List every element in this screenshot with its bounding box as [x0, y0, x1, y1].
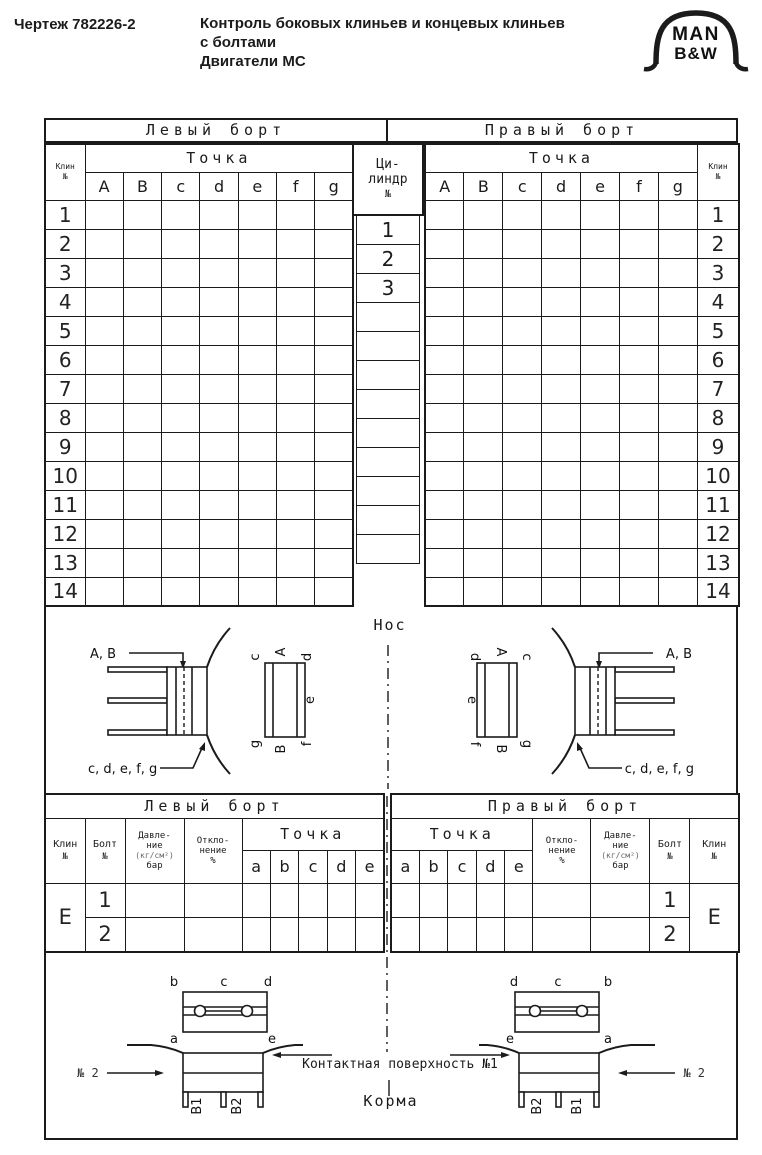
grid-cell	[123, 490, 161, 519]
row-number: 13	[697, 548, 739, 577]
cylinder-cell	[356, 361, 420, 390]
table-row: 12	[45, 519, 353, 548]
plan-label-A: A	[493, 648, 508, 657]
grid-cell	[581, 229, 620, 258]
number-sign: №	[46, 851, 85, 863]
grid-cell	[238, 461, 276, 490]
table-row: 13	[425, 548, 739, 577]
row-number: 1	[45, 200, 85, 229]
grid-cell	[200, 258, 238, 287]
row-number: 12	[697, 519, 739, 548]
grid-cell	[200, 316, 238, 345]
row-number: 9	[45, 432, 85, 461]
middle-right-wedge-diagram: A, B c, d, e, f, g d A c e f B g	[437, 615, 727, 793]
pressure-unit-bar: бар	[126, 861, 184, 871]
grid-cell	[542, 577, 581, 606]
grid-cell	[162, 200, 200, 229]
row-number: 7	[697, 374, 739, 403]
grid-cell	[327, 917, 355, 952]
board-row: Левый борт	[45, 794, 384, 818]
wedge-label: Клин	[56, 162, 75, 171]
grid-cell	[238, 548, 276, 577]
pressure-line: Давле-	[126, 831, 184, 841]
grid-cell	[503, 403, 542, 432]
table-row: 3	[425, 258, 739, 287]
document-number: Чертеж 782226-2	[14, 16, 136, 33]
grid-cell	[619, 490, 658, 519]
contact-surface-label: Контактная поверхность №1	[266, 1057, 534, 1072]
grid-cell	[581, 548, 620, 577]
grid-cell	[315, 229, 353, 258]
grid-cell	[123, 345, 161, 374]
grid-cell	[619, 229, 658, 258]
cylinder-cell: 3	[356, 274, 420, 303]
bolt-row: E1	[45, 883, 384, 917]
grid-cell	[591, 883, 650, 917]
row-number: 3	[697, 258, 739, 287]
plan-label-c: c	[554, 975, 561, 990]
grid-cell	[85, 403, 123, 432]
grid-cell	[581, 461, 620, 490]
grid-cell	[276, 490, 314, 519]
right-board-header: Правый борт	[386, 118, 738, 143]
wedge-label: Клин	[46, 839, 85, 851]
grid-cell	[542, 519, 581, 548]
grid-cell	[503, 258, 542, 287]
grid-cell	[619, 316, 658, 345]
bolt-table-right: Правый борт Точка Откло-нение% Давле-ние…	[390, 793, 740, 953]
row-number: 3	[45, 258, 85, 287]
grid-cell	[464, 548, 503, 577]
grid-cell	[619, 345, 658, 374]
pressure-col-header: Давле-ние(кг/см²)бар	[591, 818, 650, 883]
leg-label-v1: В1	[190, 1097, 205, 1114]
table-row: 9	[425, 432, 739, 461]
grid-cell	[276, 374, 314, 403]
grid-cell	[425, 374, 464, 403]
plan-label-B: B	[274, 745, 289, 754]
board-row: Правый борт	[391, 794, 739, 818]
grid-cell	[200, 548, 238, 577]
grid-cell	[123, 200, 161, 229]
plan-label-b: b	[170, 975, 178, 990]
col-e: e	[505, 850, 533, 883]
grid-cell	[238, 374, 276, 403]
col-A: A	[85, 172, 123, 200]
grid-cell	[238, 432, 276, 461]
grid-cell	[85, 490, 123, 519]
bow-label: Нос	[358, 616, 422, 634]
col-d: d	[200, 172, 238, 200]
grid-cell	[448, 883, 476, 917]
point-header: Точка	[85, 144, 353, 172]
grid-cell	[425, 316, 464, 345]
grid-cell	[123, 577, 161, 606]
table-row: 12	[425, 519, 739, 548]
grid-cell	[658, 432, 697, 461]
grid-cell	[419, 917, 447, 952]
plan-label-g: g	[248, 740, 263, 748]
row-number: 13	[45, 548, 85, 577]
plan-label-d: d	[264, 975, 272, 990]
grid-cell	[542, 229, 581, 258]
bolt-col-header: Болт№	[85, 818, 125, 883]
grid-cell	[619, 548, 658, 577]
grid-cell	[658, 577, 697, 606]
grid-cell	[591, 917, 650, 952]
grid-cell	[464, 316, 503, 345]
grid-cell	[503, 548, 542, 577]
grid-cell	[533, 917, 591, 952]
grid-cell	[425, 519, 464, 548]
table-row: 6	[425, 345, 739, 374]
grid-cell	[419, 883, 447, 917]
row-number: 5	[45, 316, 85, 345]
table-row: 2	[425, 229, 739, 258]
grid-cell	[162, 432, 200, 461]
grid-cell	[276, 229, 314, 258]
grid-cell	[200, 345, 238, 374]
letters-row: A B c d e f g	[45, 172, 353, 200]
col-f: f	[619, 172, 658, 200]
grid-cell	[464, 229, 503, 258]
grid-cell	[315, 345, 353, 374]
cylinder-cell	[356, 506, 420, 535]
grid-cell	[125, 883, 184, 917]
grid-cell	[503, 577, 542, 606]
deviation-col-header: Откло-нение%	[184, 818, 242, 883]
no2-label: № 2	[77, 1066, 99, 1080]
cylinder-cell: 1	[356, 216, 420, 245]
row-number: 14	[45, 577, 85, 606]
man-bw-logo-icon: MAN B&W	[642, 4, 752, 74]
grid-cell	[315, 519, 353, 548]
table-row: 13	[45, 548, 353, 577]
grid-cell	[425, 200, 464, 229]
grid-cell	[270, 883, 298, 917]
grid-cell	[123, 432, 161, 461]
number-sign: №	[650, 851, 689, 863]
grid-cell	[123, 287, 161, 316]
grid-cell	[581, 403, 620, 432]
grid-cell	[464, 432, 503, 461]
plan-label-d: d	[300, 653, 315, 661]
table-row: 9	[45, 432, 353, 461]
plan-label-c: c	[220, 975, 227, 990]
bolt-table-left: Левый борт Клин№ Болт№ Давле-ние(кг/см²)…	[44, 793, 385, 953]
grid-cell	[162, 374, 200, 403]
grid-cell	[658, 403, 697, 432]
bolt-label: Болт	[650, 839, 689, 851]
cylinder-cell: 2	[356, 245, 420, 274]
table-row: 11	[425, 490, 739, 519]
no2-label: № 2	[683, 1066, 705, 1080]
col-e: e	[581, 172, 620, 200]
point-header: Точка	[391, 818, 533, 850]
logo-text-bw: B&W	[674, 44, 718, 63]
grid-cell	[85, 258, 123, 287]
grid-cell	[238, 345, 276, 374]
grid-cell	[581, 258, 620, 287]
cylinder-column: Ци- линдр № 1 2 3	[352, 143, 424, 564]
grid-cell	[581, 490, 620, 519]
document-title: Контроль боковых клиньев и концевых клин…	[200, 14, 565, 71]
grid-cell	[276, 258, 314, 287]
grid-cell	[503, 490, 542, 519]
grid-cell	[425, 548, 464, 577]
plan-label-c: c	[248, 653, 263, 660]
table-row: 7	[425, 374, 739, 403]
grid-cell	[619, 577, 658, 606]
col-a: a	[391, 850, 419, 883]
row-number: 6	[697, 345, 739, 374]
col-a: a	[242, 850, 270, 883]
grid-cell	[85, 287, 123, 316]
grid-cell	[505, 917, 533, 952]
point-header: Точка	[425, 144, 697, 172]
left-board-header: Левый борт	[45, 794, 384, 818]
grid-cell	[276, 461, 314, 490]
grid-cell	[503, 316, 542, 345]
grid-cell	[464, 200, 503, 229]
grid-cell	[658, 316, 697, 345]
grid-cell	[184, 883, 242, 917]
grid-cell	[270, 917, 298, 952]
grid-cell	[242, 883, 270, 917]
table-row: 10	[425, 461, 739, 490]
grid-cell	[123, 461, 161, 490]
header-row: Точка Клин№	[425, 144, 739, 172]
grid-cell	[315, 403, 353, 432]
grid-cell	[184, 917, 242, 952]
number-sign: №	[690, 851, 738, 863]
table-row: 4	[45, 287, 353, 316]
grid-cell	[238, 519, 276, 548]
grid-cell	[276, 316, 314, 345]
grid-cell	[542, 461, 581, 490]
grid-cell	[162, 519, 200, 548]
grid-cell	[200, 490, 238, 519]
wedge-value: E	[45, 883, 85, 952]
grid-cell	[123, 403, 161, 432]
grid-cell	[503, 200, 542, 229]
table-row: 5	[425, 316, 739, 345]
grid-cell	[123, 374, 161, 403]
col-b: b	[270, 850, 298, 883]
col-e: e	[238, 172, 276, 200]
grid-cell	[299, 917, 327, 952]
grid-cell	[238, 287, 276, 316]
row-number: 10	[697, 461, 739, 490]
deviation-line: Откло-	[533, 836, 590, 846]
grid-cell	[658, 200, 697, 229]
cyl-line-1: Ци-	[354, 157, 422, 172]
grid-cell	[425, 432, 464, 461]
point-header: Точка	[242, 818, 384, 850]
grid-cell	[658, 258, 697, 287]
grid-cell	[448, 917, 476, 952]
grid-cell	[425, 403, 464, 432]
table-row: 1	[425, 200, 739, 229]
grid-cell	[658, 229, 697, 258]
title-line-1: Контроль боковых клиньев и концевых клин…	[200, 14, 565, 33]
grid-cell	[238, 403, 276, 432]
grid-cell	[276, 345, 314, 374]
col-c: c	[162, 172, 200, 200]
grid-cell	[242, 917, 270, 952]
row-number: 14	[697, 577, 739, 606]
grid-cell	[162, 287, 200, 316]
number-sign: №	[63, 172, 68, 181]
table-row: 4	[425, 287, 739, 316]
grid-cell	[162, 548, 200, 577]
row-number: 11	[45, 490, 85, 519]
bolt-number: 1	[85, 883, 125, 917]
grid-cell	[123, 316, 161, 345]
bolt-number: 2	[650, 917, 690, 952]
grid-cell	[85, 432, 123, 461]
grid-cell	[464, 287, 503, 316]
cylinder-header: Ци- линдр №	[352, 143, 424, 216]
deviation-col-header: Откло-нение%	[533, 818, 591, 883]
grid-cell	[503, 345, 542, 374]
row-number: 12	[45, 519, 85, 548]
row-number: 5	[697, 316, 739, 345]
grid-cell	[425, 490, 464, 519]
plan-label-f: f	[467, 742, 482, 747]
grid-cell	[581, 200, 620, 229]
col-B: B	[464, 172, 503, 200]
row-number: 4	[45, 287, 85, 316]
right-board-header: Правый борт	[391, 794, 739, 818]
plan-label-f: f	[300, 741, 315, 746]
pressure-line: ние	[591, 841, 649, 851]
title-line-3: Двигатели МС	[200, 52, 565, 71]
grid-cell	[238, 577, 276, 606]
grid-cell	[503, 287, 542, 316]
col-d: d	[327, 850, 355, 883]
grid-cell	[276, 548, 314, 577]
plan-label-e: e	[268, 1032, 276, 1047]
plan-label-c: c	[519, 653, 534, 660]
grid-cell	[162, 461, 200, 490]
grid-cell	[658, 461, 697, 490]
grid-cell	[85, 374, 123, 403]
leg-label-v2: В2	[530, 1097, 545, 1114]
row-number: 1	[697, 200, 739, 229]
grid-cell	[276, 200, 314, 229]
table-row: 11	[45, 490, 353, 519]
plan-label-b: b	[604, 975, 612, 990]
grid-cell	[125, 917, 184, 952]
grid-cell	[464, 258, 503, 287]
plan-label-B: B	[493, 745, 508, 754]
grid-cell	[658, 287, 697, 316]
plan-label-d: d	[467, 653, 482, 661]
grid-cell	[619, 519, 658, 548]
col-b: b	[419, 850, 447, 883]
grid-cell	[542, 258, 581, 287]
grid-cell	[162, 229, 200, 258]
grid-cell	[542, 374, 581, 403]
pressure-unit-bar: бар	[591, 861, 649, 871]
grid-cell	[581, 287, 620, 316]
col-d: d	[476, 850, 504, 883]
grid-cell	[200, 229, 238, 258]
pressure-col-header: Давле-ние(кг/см²)бар	[125, 818, 184, 883]
cylinder-cell	[356, 390, 420, 419]
number-sign: №	[716, 172, 721, 181]
grid-cell	[619, 403, 658, 432]
row-number: 8	[697, 403, 739, 432]
grid-cell	[391, 883, 419, 917]
left-board-header: Левый борт	[44, 118, 388, 143]
grid-cell	[276, 287, 314, 316]
wedge-col-header: Клин№	[690, 818, 739, 883]
grid-cell	[85, 548, 123, 577]
row-number: 11	[697, 490, 739, 519]
grid-cell	[581, 345, 620, 374]
grid-cell	[299, 883, 327, 917]
grid-cell	[464, 374, 503, 403]
col-f: f	[276, 172, 314, 200]
grid-cell	[542, 403, 581, 432]
grid-cell	[542, 345, 581, 374]
grid-cell	[238, 200, 276, 229]
leg-label-v2: В2	[230, 1097, 245, 1114]
grid-cell	[315, 432, 353, 461]
grid-cell	[542, 200, 581, 229]
grid-cell	[619, 374, 658, 403]
grid-cell	[542, 316, 581, 345]
grid-cell	[85, 519, 123, 548]
grid-cell	[315, 200, 353, 229]
bolt-number: 2	[85, 917, 125, 952]
grid-cell	[162, 577, 200, 606]
grid-cell	[200, 577, 238, 606]
grid-cell	[542, 490, 581, 519]
grid-cell	[327, 883, 355, 917]
col-c: c	[299, 850, 327, 883]
row-number: 4	[697, 287, 739, 316]
grid-cell	[315, 316, 353, 345]
grid-cell	[619, 461, 658, 490]
grid-cell	[162, 258, 200, 287]
grid-cell	[619, 258, 658, 287]
main-table-left: Клин№ Точка A B c d e f g 1 2 3 4 5 6 7 …	[44, 143, 354, 607]
col-c: c	[503, 172, 542, 200]
pressure-unit: (кг/см²)	[591, 851, 649, 861]
grid-cell	[85, 200, 123, 229]
number-sign: №	[86, 851, 125, 863]
bolt-number: 1	[650, 883, 690, 917]
grid-cell	[315, 287, 353, 316]
grid-cell	[85, 345, 123, 374]
grid-cell	[619, 287, 658, 316]
grid-cell	[315, 548, 353, 577]
grid-cell	[503, 519, 542, 548]
bolt-col-header: Болт№	[650, 818, 690, 883]
grid-cell	[425, 577, 464, 606]
grid-cell	[123, 519, 161, 548]
letters-row: A B c d e f g	[425, 172, 739, 200]
row-number: 2	[697, 229, 739, 258]
table-row: 14	[425, 577, 739, 606]
table-row: 8	[45, 403, 353, 432]
grid-cell	[162, 490, 200, 519]
cyl-line-2: линдр	[354, 172, 422, 187]
grid-cell	[658, 374, 697, 403]
